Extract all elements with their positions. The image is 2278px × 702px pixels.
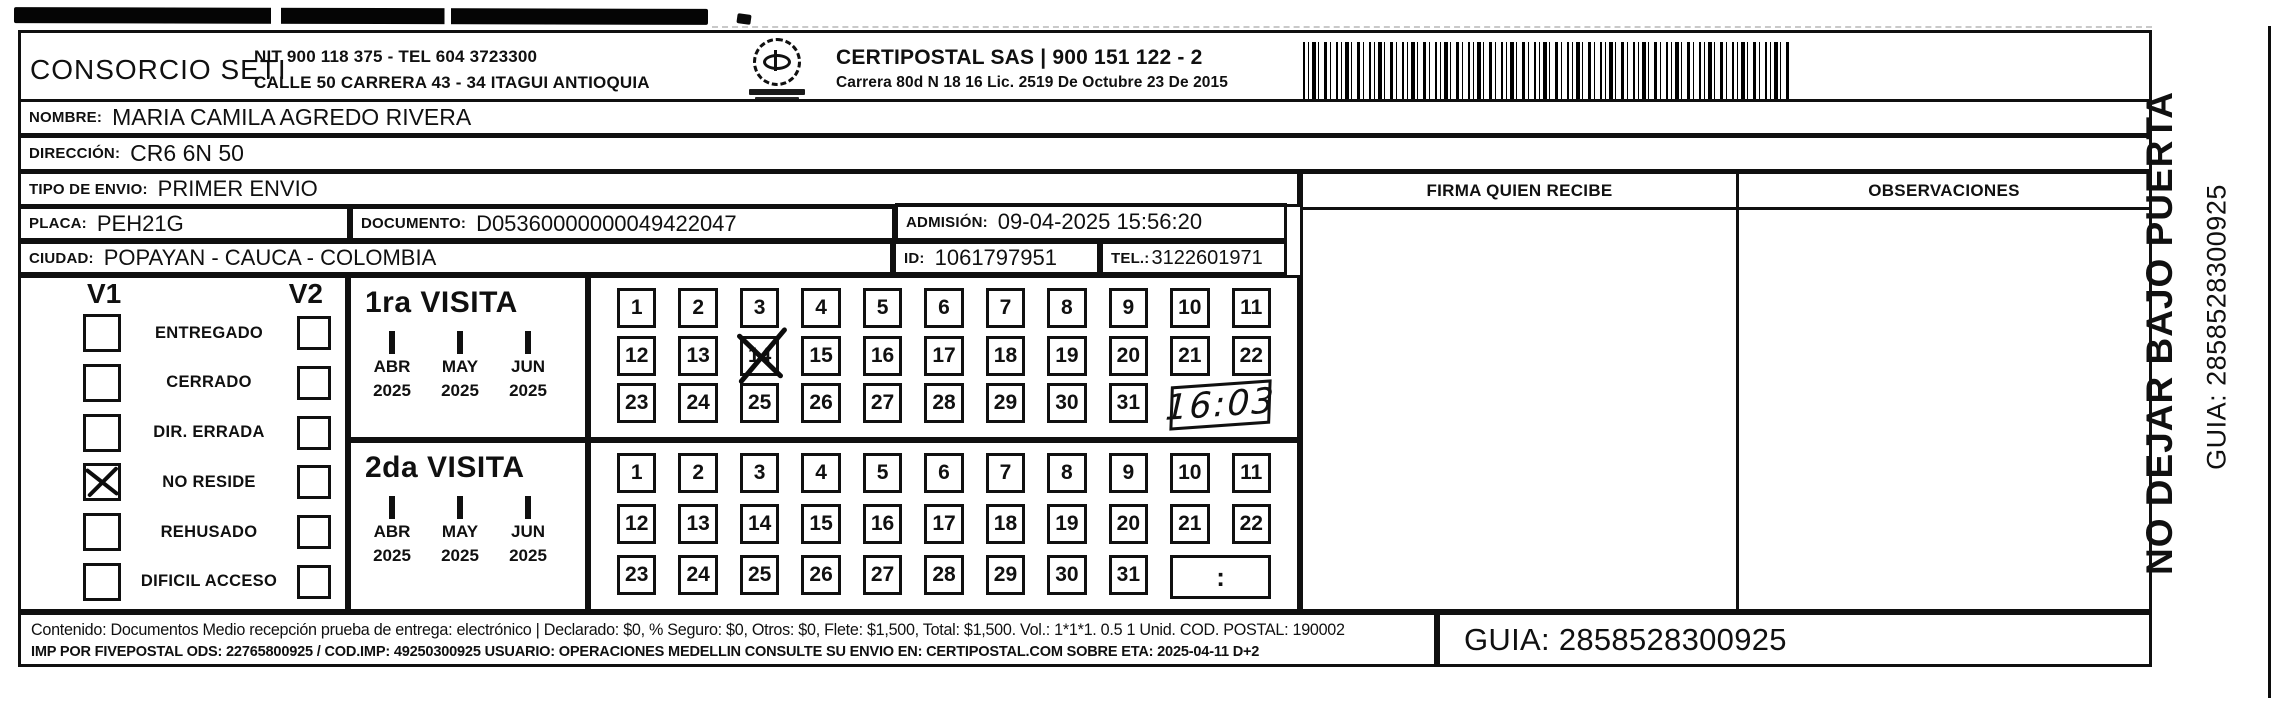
cerrado-label: CERRADO [121,373,297,392]
status-checkbox-panel: V1 V2 ENTREGADO CERRADO DIR. ERRADA NO R… [18,275,348,612]
entregado-v1-checkbox[interactable] [83,314,121,352]
month-year: 2025 [503,546,553,565]
firma-header: FIRMA QUIEN RECIBE [1303,174,1736,210]
day-cell-30[interactable]: 30 [1047,555,1086,595]
documento-value: D05360000000049422047 [476,211,737,237]
day-cell-11[interactable]: 11 [1232,453,1271,493]
tipo-envio-value: PRIMER ENVIO [158,176,318,202]
day-cell-18[interactable]: 18 [986,336,1025,376]
certipostal-logo-icon [742,38,812,100]
carrier-info-block: CERTIPOSTAL SAS | 900 151 122 - 2 Carrer… [836,46,1228,92]
visit-2-day-grid: 1234567891011121314151617181920212223242… [588,440,1300,612]
day-cell-15[interactable]: 15 [801,336,840,376]
signature-region: FIRMA QUIEN RECIBE OBSERVACIONES [1300,171,2152,612]
delivery-form-scan: CONSORCIO SETI NIT 900 118 375 - TEL 604… [0,0,2278,702]
month-label: ABR [367,522,417,541]
day-cell-24[interactable]: 24 [678,555,717,595]
rehusado-label: REHUSADO [121,523,297,542]
page-edge-line [2268,26,2271,698]
visit-2-month-may: MAY 2025 [435,499,485,565]
field-documento: DOCUMENTO: D05360000000049422047 [350,206,895,241]
status-rows: ENTREGADO CERRADO DIR. ERRADA NO RESIDE [21,314,345,601]
signature-area[interactable] [1303,210,1736,609]
visit-1-month-jun: JUN 2025 [503,334,553,400]
month-year: 2025 [503,381,553,400]
day-cell-18[interactable]: 18 [986,504,1025,544]
footer-line2: IMP POR FIVEPOSTAL ODS: 22765800925 / CO… [31,643,1382,660]
field-nombre: NOMBRE: MARIA CAMILA AGREDO RIVERA [18,99,2152,136]
visit-1-may-checkbox[interactable] [457,331,463,354]
logo-seal-circle-icon [753,38,801,86]
day-cell-20[interactable]: 20 [1109,504,1148,544]
observaciones-area[interactable] [1739,210,2149,609]
visit-1-month-abr: ABR 2025 [367,334,417,400]
company-nit-line: NIT 900 118 375 - TEL 604 3723300 [254,44,650,70]
field-id: ID: 1061797951 [893,241,1100,275]
placa-label: PLACA: [29,215,87,232]
field-tipo-envio: TIPO DE ENVIO: PRIMER ENVIO [18,171,1300,207]
id-value: 1061797951 [935,245,1057,271]
cerrado-v1-checkbox[interactable] [83,364,121,402]
ciudad-label: CIUDAD: [29,250,94,267]
day-cell-29[interactable]: 29 [986,555,1025,595]
v2-column-label: V2 [289,278,323,310]
day-cell-12[interactable]: 12 [617,504,656,544]
month-label: JUN [503,357,553,376]
day-cell-3[interactable]: 3 [740,288,779,328]
day-cell-10[interactable]: 10 [1170,453,1209,493]
no-reside-label: NO RESIDE [121,473,297,492]
id-label: ID: [904,250,925,267]
dificil-acceso-v1-checkbox[interactable] [83,563,121,601]
side-guia-text: GUIA: 2858528300925 [2202,184,2233,470]
dificil-acceso-label: DIFICIL ACCESO [121,572,297,591]
day-cell-27[interactable]: 27 [863,383,902,423]
field-direccion: DIRECCIÓN: CR6 6N 50 [18,135,2152,172]
visit-1-panel: 1ra VISITA ABR 2025 MAY 2025 JUN 2025 [348,275,588,440]
day-cell-5[interactable]: 5 [863,453,902,493]
footer-details: Contenido: Documentos Medio recepción pr… [18,612,1437,667]
logo-glyph-icon [763,54,791,70]
company-address-line: CALLE 50 CARRERA 43 - 34 ITAGUI ANTIOQUI… [254,70,650,96]
day-cell-7[interactable]: 7 [986,288,1025,328]
rehusado-v2-checkbox[interactable] [297,515,331,549]
day-cell-6[interactable]: 6 [924,288,963,328]
field-admision: ADMISIÓN: 09-04-2025 15:56:20 [895,203,1287,241]
visit-1-title: 1ra VISITA [365,286,585,320]
entregado-label: ENTREGADO [121,324,297,343]
day-cell-26[interactable]: 26 [801,383,840,423]
firma-column: FIRMA QUIEN RECIBE [1303,174,1739,609]
visit-1-day-grid: 1234567891011121314151617181920212223242… [588,275,1300,440]
day-cell-19[interactable]: 19 [1047,336,1086,376]
day-cell-23[interactable]: 23 [617,555,656,595]
v1-column-label: V1 [87,278,121,310]
status-row-no-reside: NO RESIDE [83,463,331,501]
day-cell-15[interactable]: 15 [801,504,840,544]
entregado-v2-checkbox[interactable] [297,316,331,350]
visit-2-panel: 2da VISITA ABR 2025 MAY 2025 JUN 2025 [348,440,588,612]
day-cell-7[interactable]: 7 [986,453,1025,493]
month-label: MAY [435,522,485,541]
dir-errada-label: DIR. ERRADA [121,423,297,442]
day-cell-6[interactable]: 6 [924,453,963,493]
day-cell-23[interactable]: 23 [617,383,656,423]
month-year: 2025 [435,381,485,400]
guia-number-box: GUIA: 2858528300925 [1437,612,2152,667]
day-cell-30[interactable]: 30 [1047,383,1086,423]
month-year: 2025 [435,546,485,565]
visit-1-month-may: MAY 2025 [435,334,485,400]
day-cell-26[interactable]: 26 [801,555,840,595]
visit-1-abr-checkbox[interactable] [389,331,395,354]
scan-artifact-smear [14,7,708,25]
day-cell-16[interactable]: 16 [863,504,902,544]
month-year: 2025 [367,381,417,400]
day-cell-5[interactable]: 5 [863,288,902,328]
status-row-rehusado: REHUSADO [83,513,331,551]
carrier-address-line: Carrera 80d N 18 16 Lic. 2519 De Octubre… [836,74,1228,92]
month-year: 2025 [367,546,417,565]
visit-2-abr-checkbox[interactable] [389,496,395,519]
visit-2-month-abr: ABR 2025 [367,499,417,565]
day-cell-3[interactable]: 3 [740,453,779,493]
tel-value: 3122601971 [1152,247,1263,270]
visit-2-may-checkbox[interactable] [457,496,463,519]
day-cell-24[interactable]: 24 [678,383,717,423]
visit-1-months: ABR 2025 MAY 2025 JUN 2025 [351,320,585,400]
day-cell-13[interactable]: 13 [678,504,717,544]
observaciones-header: OBSERVACIONES [1739,174,2149,210]
month-label: MAY [435,357,485,376]
day-cell-22[interactable]: 22 [1232,336,1271,376]
day-cell-22[interactable]: 22 [1232,504,1271,544]
rehusado-v1-checkbox[interactable] [83,513,121,551]
month-label: ABR [367,357,417,376]
cerrado-v2-checkbox[interactable] [297,366,331,400]
day-cell-21[interactable]: 21 [1170,336,1209,376]
guia-number: GUIA: 2858528300925 [1464,622,1787,658]
field-ciudad: CIUDAD: POPAYAN - CAUCA - COLOMBIA [18,241,893,275]
logo-caption-smudge [749,89,805,95]
day-cell-31[interactable]: 31 [1109,383,1148,423]
visit-2-title: 2da VISITA [365,451,585,485]
visit-2-jun-checkbox[interactable] [525,496,531,519]
handwritten-x-mark [743,339,776,373]
documento-label: DOCUMENTO: [361,215,466,232]
day-cell-9[interactable]: 9 [1109,453,1148,493]
day-cell-20[interactable]: 20 [1109,336,1148,376]
day-cell-28[interactable]: 28 [924,555,963,595]
day-cell-21[interactable]: 21 [1170,504,1209,544]
direccion-label: DIRECCIÓN: [29,145,120,162]
scan-artifact-line [712,26,2152,28]
day-cell-25[interactable]: 25 [740,383,779,423]
dificil-acceso-v2-checkbox[interactable] [297,565,331,599]
visit-1-jun-checkbox[interactable] [525,331,531,354]
day-cell-14[interactable]: 14 [740,504,779,544]
day-cell-27[interactable]: 27 [863,555,902,595]
day-cell-1[interactable]: 1 [617,453,656,493]
day-cell-9[interactable]: 9 [1109,288,1148,328]
time-written-box[interactable]: 16:03 [1169,379,1271,430]
day-cell-17[interactable]: 17 [924,504,963,544]
day-cell-14[interactable]: 14 [740,336,779,376]
day-cell-17[interactable]: 17 [924,336,963,376]
day-cell-11[interactable]: 11 [1232,288,1271,328]
dir-errada-v2-checkbox[interactable] [297,416,331,450]
time-empty-box[interactable]: : [1170,555,1271,599]
day-cell-10[interactable]: 10 [1170,288,1209,328]
tipo-envio-label: TIPO DE ENVIO: [29,181,148,198]
day-cell-13[interactable]: 13 [678,336,717,376]
status-row-entregado: ENTREGADO [83,314,331,352]
field-placa: PLACA: PEH21G [18,206,350,241]
visit-2-month-jun: JUN 2025 [503,499,553,565]
day-cell-8[interactable]: 8 [1047,453,1086,493]
day-cell-1[interactable]: 1 [617,288,656,328]
dir-errada-v1-checkbox[interactable] [83,414,121,452]
status-row-dificil-acceso: DIFICIL ACCESO [83,563,331,601]
status-row-dir-errada: DIR. ERRADA [83,414,331,452]
direccion-value: CR6 6N 50 [130,140,244,167]
month-label: JUN [503,522,553,541]
visit-2-months: ABR 2025 MAY 2025 JUN 2025 [351,485,585,565]
no-reside-v1-checkbox[interactable] [83,463,121,501]
day-cell-28[interactable]: 28 [924,383,963,423]
day-cell-29[interactable]: 29 [986,383,1025,423]
day-cell-4[interactable]: 4 [801,453,840,493]
day-cell-31[interactable]: 31 [1109,555,1148,595]
status-row-cerrado: CERRADO [83,364,331,402]
company-name: CONSORCIO SETI [30,54,287,86]
scan-artifact-mark [736,13,751,25]
field-tel: TEL.: 3122601971 [1100,241,1287,275]
no-reside-v2-checkbox[interactable] [297,465,331,499]
day-cell-19[interactable]: 19 [1047,504,1086,544]
tel-label: TEL.: [1111,250,1150,267]
day-cell-16[interactable]: 16 [863,336,902,376]
day-cell-25[interactable]: 25 [740,555,779,595]
day-cell-12[interactable]: 12 [617,336,656,376]
observaciones-column: OBSERVACIONES [1739,174,2149,609]
placa-value: PEH21G [97,211,184,237]
admision-label: ADMISIÓN: [906,214,988,231]
day-cell-8[interactable]: 8 [1047,288,1086,328]
footer-line1: Contenido: Documentos Medio recepción pr… [31,620,1354,640]
day-cell-4[interactable]: 4 [801,288,840,328]
carrier-name-line: CERTIPOSTAL SAS | 900 151 122 - 2 [836,46,1228,70]
barcode-icon [1303,42,1790,100]
day-cell-2[interactable]: 2 [678,288,717,328]
ciudad-value: POPAYAN - CAUCA - COLOMBIA [104,245,437,271]
nombre-label: NOMBRE: [29,109,102,126]
day-cell-2[interactable]: 2 [678,453,717,493]
company-info-block: NIT 900 118 375 - TEL 604 3723300 CALLE … [254,44,650,96]
nombre-value: MARIA CAMILA AGREDO RIVERA [112,104,471,131]
admision-value: 09-04-2025 15:56:20 [998,209,1202,235]
side-warning-text: NO DEJAR BAJO PUERTA [2139,91,2181,575]
